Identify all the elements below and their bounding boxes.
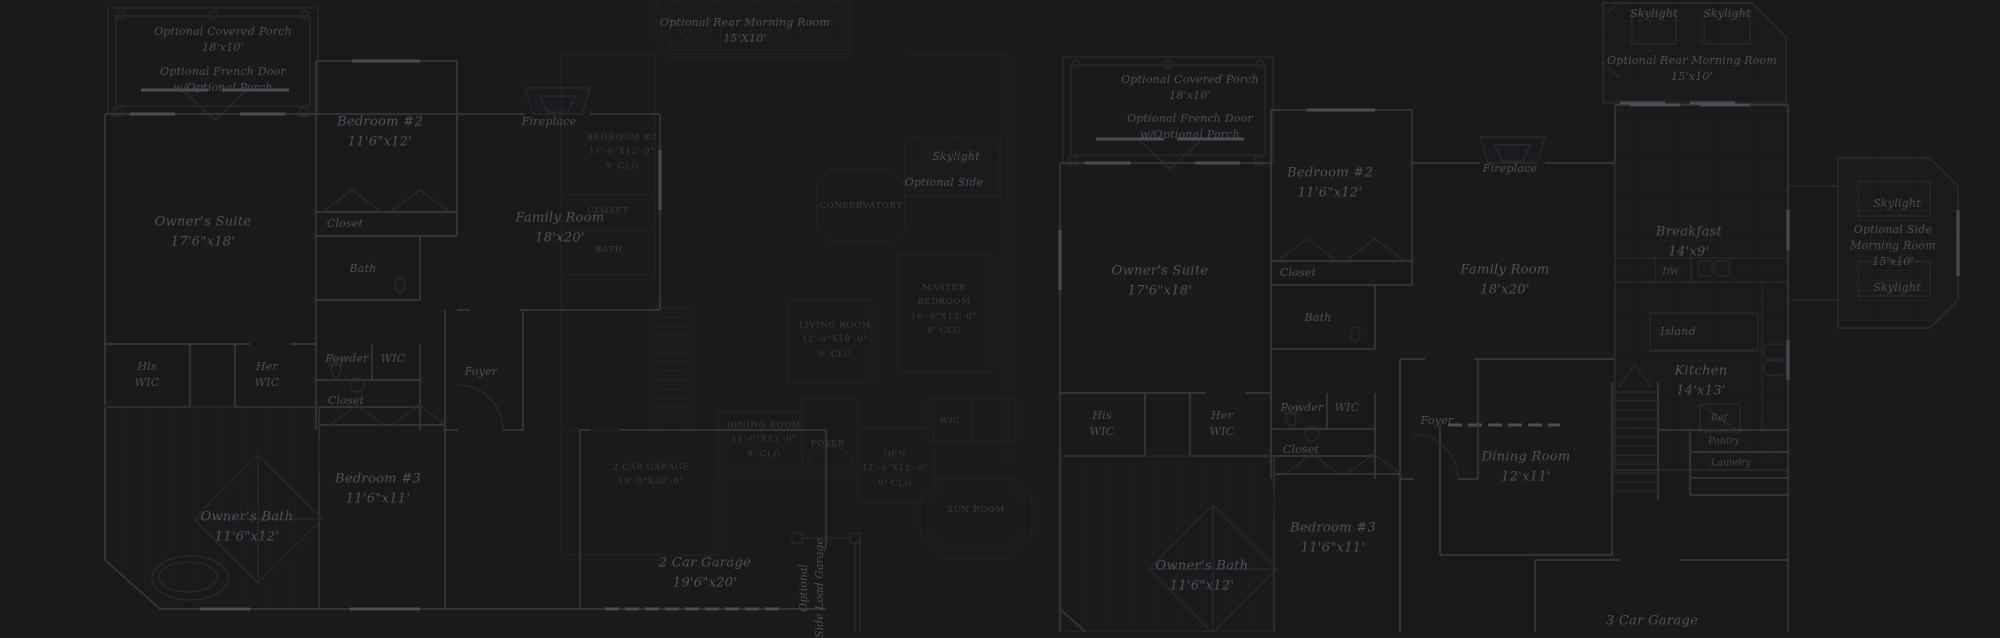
label-garage-c: 3 Car Garage (1606, 611, 1698, 631)
label-family-room-a: Family Room 18'x20' (515, 209, 604, 248)
label-island-c: Island (1660, 324, 1695, 340)
label-dining-room-c: Dining Room 12'x11' (1481, 448, 1570, 487)
label-rear-morning-room-b: Optional Rear Morning Room 15'X10' (660, 15, 830, 47)
label-owners-suite-c: Owner's Suite 17'6"x18' (1112, 262, 1209, 301)
label-den-b: Den 11'-0"x12'-0" 9' Clg (862, 447, 928, 490)
label-side-load-garage-a: Optional Side Load Garage (796, 538, 828, 638)
label-closet-bedroom-2-c: Closet (1280, 265, 1316, 281)
label-optional-covered-porch-c: Optional Covered Porch 18'x10' (1121, 72, 1259, 104)
label-her-wic-c: Her WIC (1210, 408, 1235, 440)
label-fireplace-a: Fireplace (522, 114, 577, 130)
label-powder-a: Powder (325, 351, 368, 367)
label-foyer-b: Foyer (811, 437, 846, 451)
label-optional-french-door-c: Optional French Door w/Optional Porch (1127, 111, 1253, 143)
label-bedroom-2-b: Bedroom #2 11'-0"x12'-0" 9' Clg (587, 130, 658, 173)
label-garage-b: 2 Car Garage 19'-0"x20'-0" (613, 461, 690, 490)
label-bath-b: Bath (595, 243, 623, 257)
label-garage-a: 2 Car Garage 19'6"x20' (659, 554, 751, 593)
label-dining-room-b: Dining Room 11'-0"x13'-0" 9' Clg (727, 418, 802, 461)
label-breakfast-c: Breakfast 14'x9' (1656, 223, 1722, 262)
label-skylight-a: Skylight (932, 149, 980, 165)
label-optional-side-a: Optional Side (905, 175, 983, 191)
label-kitchen-c: Kitchen 14'x13' (1675, 362, 1728, 401)
label-owners-bath-a: Owner's Bath 11'6"x12' (201, 508, 294, 547)
label-his-wic-c: His WIC (1090, 408, 1115, 440)
label-skylight-rear-1-c: Skylight (1630, 6, 1678, 22)
label-skylight-side-top-c: Skylight (1873, 196, 1921, 212)
label-laundry-c: Laundry (1711, 456, 1751, 469)
label-her-wic-a: Her WIC (255, 359, 280, 391)
label-optional-french-door-a: Optional French Door w/Optional Porch (160, 64, 286, 96)
label-owners-bath-c: Owner's Bath 11'6"x12' (1156, 557, 1249, 596)
label-bedroom-2-c: Bedroom #2 11'6"x12' (1287, 164, 1373, 203)
label-ref-c: Ref (1711, 411, 1727, 424)
label-his-wic-a: His WIC (135, 359, 160, 391)
label-powder-c: Powder (1280, 400, 1323, 416)
labels-layer: Optional Covered Porch 18'x10'Optional F… (0, 0, 2000, 632)
label-wic-a: WIC (381, 351, 406, 367)
label-bedroom-3-c: Bedroom #3 11'6"x11' (1290, 519, 1376, 558)
label-master-bedroom-b: Master Bedroom 16'-0"x13'-0" 9' Clg (911, 281, 977, 339)
label-rear-morning-room-c: Optional Rear Morning Room 15'x10' (1607, 53, 1777, 85)
label-closet-bedroom-2-a: Closet (327, 216, 363, 232)
label-fireplace-c: Fireplace (1483, 161, 1538, 177)
label-foyer-a: Foyer (465, 364, 498, 380)
label-wic-b: WIC (940, 414, 961, 428)
label-skylight-side-bottom-c: Skylight (1873, 280, 1921, 296)
label-closet-a: Closet (328, 393, 364, 409)
label-bedroom-3-a: Bedroom #3 11'6"x11' (335, 470, 421, 509)
floorplan-hero-background: Optional Covered Porch 18'x10'Optional F… (0, 0, 2000, 632)
label-sun-room-b: Sun Room (947, 503, 1005, 517)
label-conservatory-b: Conservatory (819, 199, 902, 213)
label-bath-c: Bath (1305, 310, 1332, 326)
label-side-morning-room-c: Optional Side Morning Room 15'x10' (1850, 222, 1936, 270)
label-owners-suite-a: Owner's Suite 17'6"x18' (155, 213, 252, 252)
label-foyer-c: Foyer (1421, 413, 1454, 429)
label-wic-c: WIC (1335, 400, 1360, 416)
label-optional-covered-porch-a: Optional Covered Porch 18'x10' (154, 24, 292, 56)
label-skylight-rear-2-c: Skylight (1703, 6, 1751, 22)
label-living-room-b: Living Room 12'-0"x18'-0" 9' Clg (799, 318, 871, 361)
label-family-room-c: Family Room 18'x20' (1460, 261, 1549, 300)
label-closet-b: Closet (587, 204, 628, 218)
label-bath-a: Bath (350, 261, 377, 277)
label-dw-c: DW (1662, 265, 1679, 278)
label-pantry-c: Pantry (1708, 434, 1739, 447)
label-closet-c: Closet (1283, 442, 1319, 458)
label-bedroom-2-a: Bedroom #2 11'6"x12' (337, 113, 423, 152)
